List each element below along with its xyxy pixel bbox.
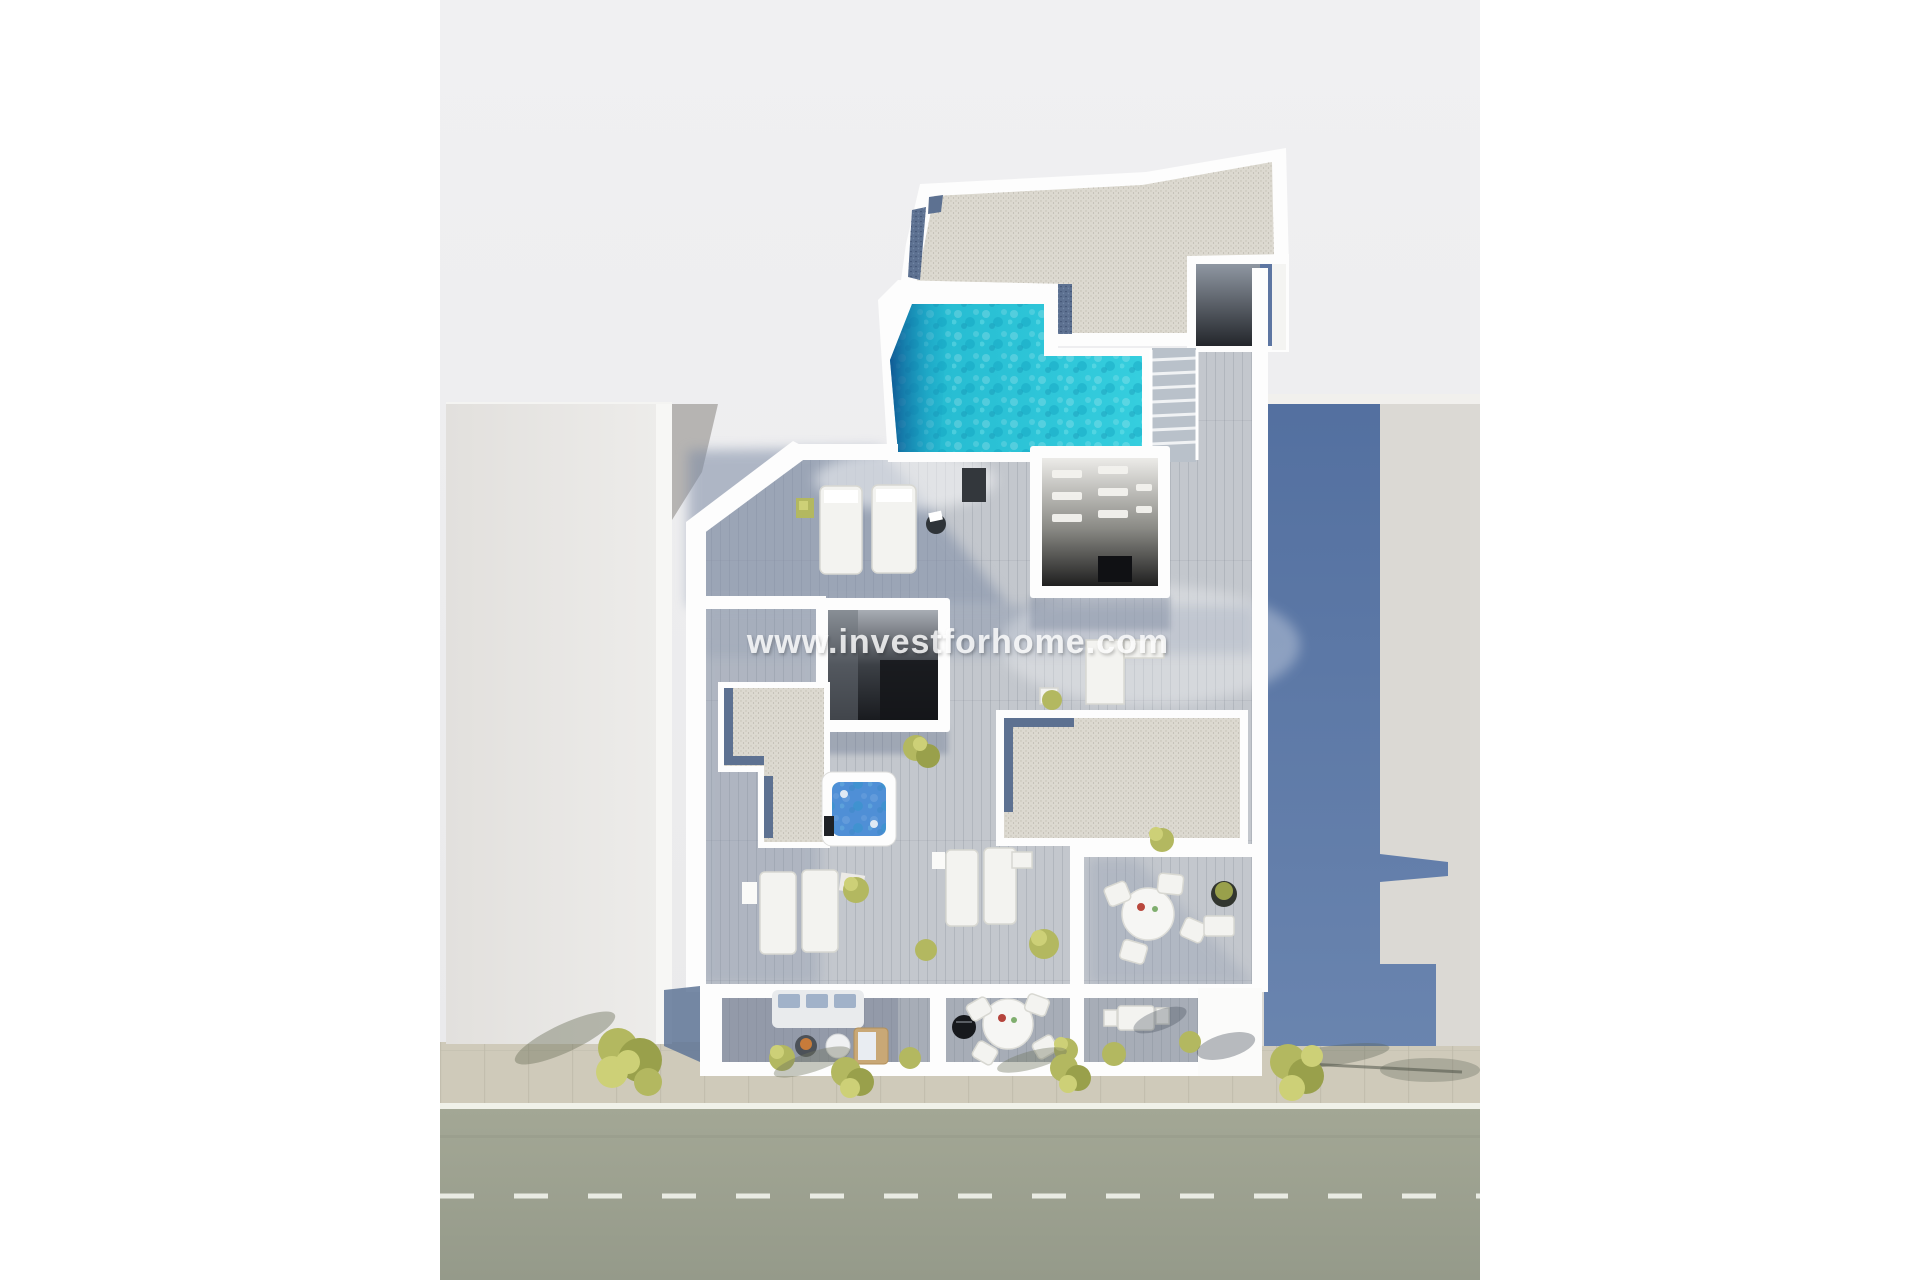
street bbox=[440, 1042, 1480, 1280]
daybed-cushion bbox=[858, 1032, 876, 1060]
bush bbox=[1102, 1042, 1126, 1066]
chair bbox=[1104, 1010, 1117, 1026]
right-lower-block bbox=[1198, 988, 1262, 1076]
left-building-wall bbox=[446, 404, 660, 1044]
jacuzzi bbox=[822, 772, 896, 846]
sun-lounger bbox=[760, 872, 796, 954]
upper-terrace-wall bbox=[798, 444, 898, 460]
patio-texture bbox=[1004, 718, 1240, 838]
table-decor bbox=[1137, 903, 1145, 911]
patio-chip-strip bbox=[1004, 720, 1013, 812]
sun-lounger bbox=[802, 870, 838, 952]
table-decor bbox=[1152, 906, 1158, 912]
lounger-pillow bbox=[876, 489, 912, 502]
lounger-pillow bbox=[824, 490, 858, 503]
tray-decor bbox=[800, 1038, 812, 1050]
stairwell-opening bbox=[816, 598, 950, 732]
outdoor-cabinet bbox=[962, 468, 986, 502]
road-edge-line bbox=[440, 1103, 1480, 1109]
towel-mat bbox=[742, 882, 757, 904]
stairwell-dark bbox=[880, 660, 938, 720]
render-scene: www.investforhome.com bbox=[0, 0, 1920, 1280]
skylight-strip bbox=[928, 195, 943, 214]
watermark-text: www.investforhome.com bbox=[746, 623, 1169, 661]
pergola-room bbox=[1030, 446, 1170, 598]
table-decor bbox=[998, 1014, 1006, 1022]
plant-highlight bbox=[844, 877, 858, 891]
bush bbox=[899, 1047, 921, 1069]
sofa-cushion-stripes bbox=[778, 994, 856, 1008]
stair-bulkhead bbox=[1187, 254, 1289, 352]
interior-wall bbox=[686, 596, 826, 609]
pergola-dark-box bbox=[1098, 556, 1132, 582]
gravel-patio-right bbox=[996, 710, 1248, 852]
patio-chip-strip bbox=[724, 688, 733, 764]
bulkhead-edge bbox=[1272, 264, 1286, 350]
skylight-strip-texture bbox=[1058, 284, 1072, 334]
road-texture-band bbox=[440, 1135, 1480, 1138]
pool-stairs bbox=[1151, 348, 1197, 462]
planter-foliage bbox=[1215, 882, 1233, 900]
bush-highlight bbox=[1149, 827, 1163, 841]
sun-lounger bbox=[984, 848, 1016, 924]
plant-highlight bbox=[770, 1045, 784, 1059]
right-building-parapet bbox=[1262, 394, 1480, 404]
jacuzzi-caustics bbox=[832, 782, 886, 836]
planter-highlight bbox=[799, 501, 808, 510]
small-table bbox=[1204, 916, 1234, 936]
chair bbox=[1157, 873, 1184, 896]
plant-highlight bbox=[1031, 930, 1047, 946]
jacuzzi-jet bbox=[870, 820, 878, 828]
real-estate-render: www.investforhome.com bbox=[0, 0, 1920, 1280]
left-building-edge-highlight bbox=[656, 404, 672, 1044]
plant bbox=[1042, 690, 1062, 710]
jacuzzi-jet bbox=[840, 790, 848, 798]
side-table bbox=[1012, 852, 1032, 868]
sun-lounger bbox=[946, 850, 978, 926]
right-neighbor-building bbox=[1244, 394, 1480, 1082]
plant bbox=[915, 939, 937, 961]
patio-chip-strip bbox=[1004, 718, 1074, 727]
right-parapet bbox=[1252, 268, 1268, 992]
towel-mat bbox=[932, 852, 945, 869]
corner-wall bbox=[700, 988, 722, 1076]
table-decor bbox=[1011, 1017, 1017, 1023]
patio-chip-strip bbox=[724, 756, 764, 765]
jacuzzi-control bbox=[824, 816, 834, 836]
plant-highlight bbox=[913, 737, 927, 751]
divider-wall bbox=[1070, 844, 1084, 992]
bulkhead-interior bbox=[1196, 264, 1260, 346]
left-parapet bbox=[686, 522, 706, 992]
terrace-divider bbox=[930, 996, 946, 1068]
patio-chip-strip bbox=[764, 776, 773, 838]
